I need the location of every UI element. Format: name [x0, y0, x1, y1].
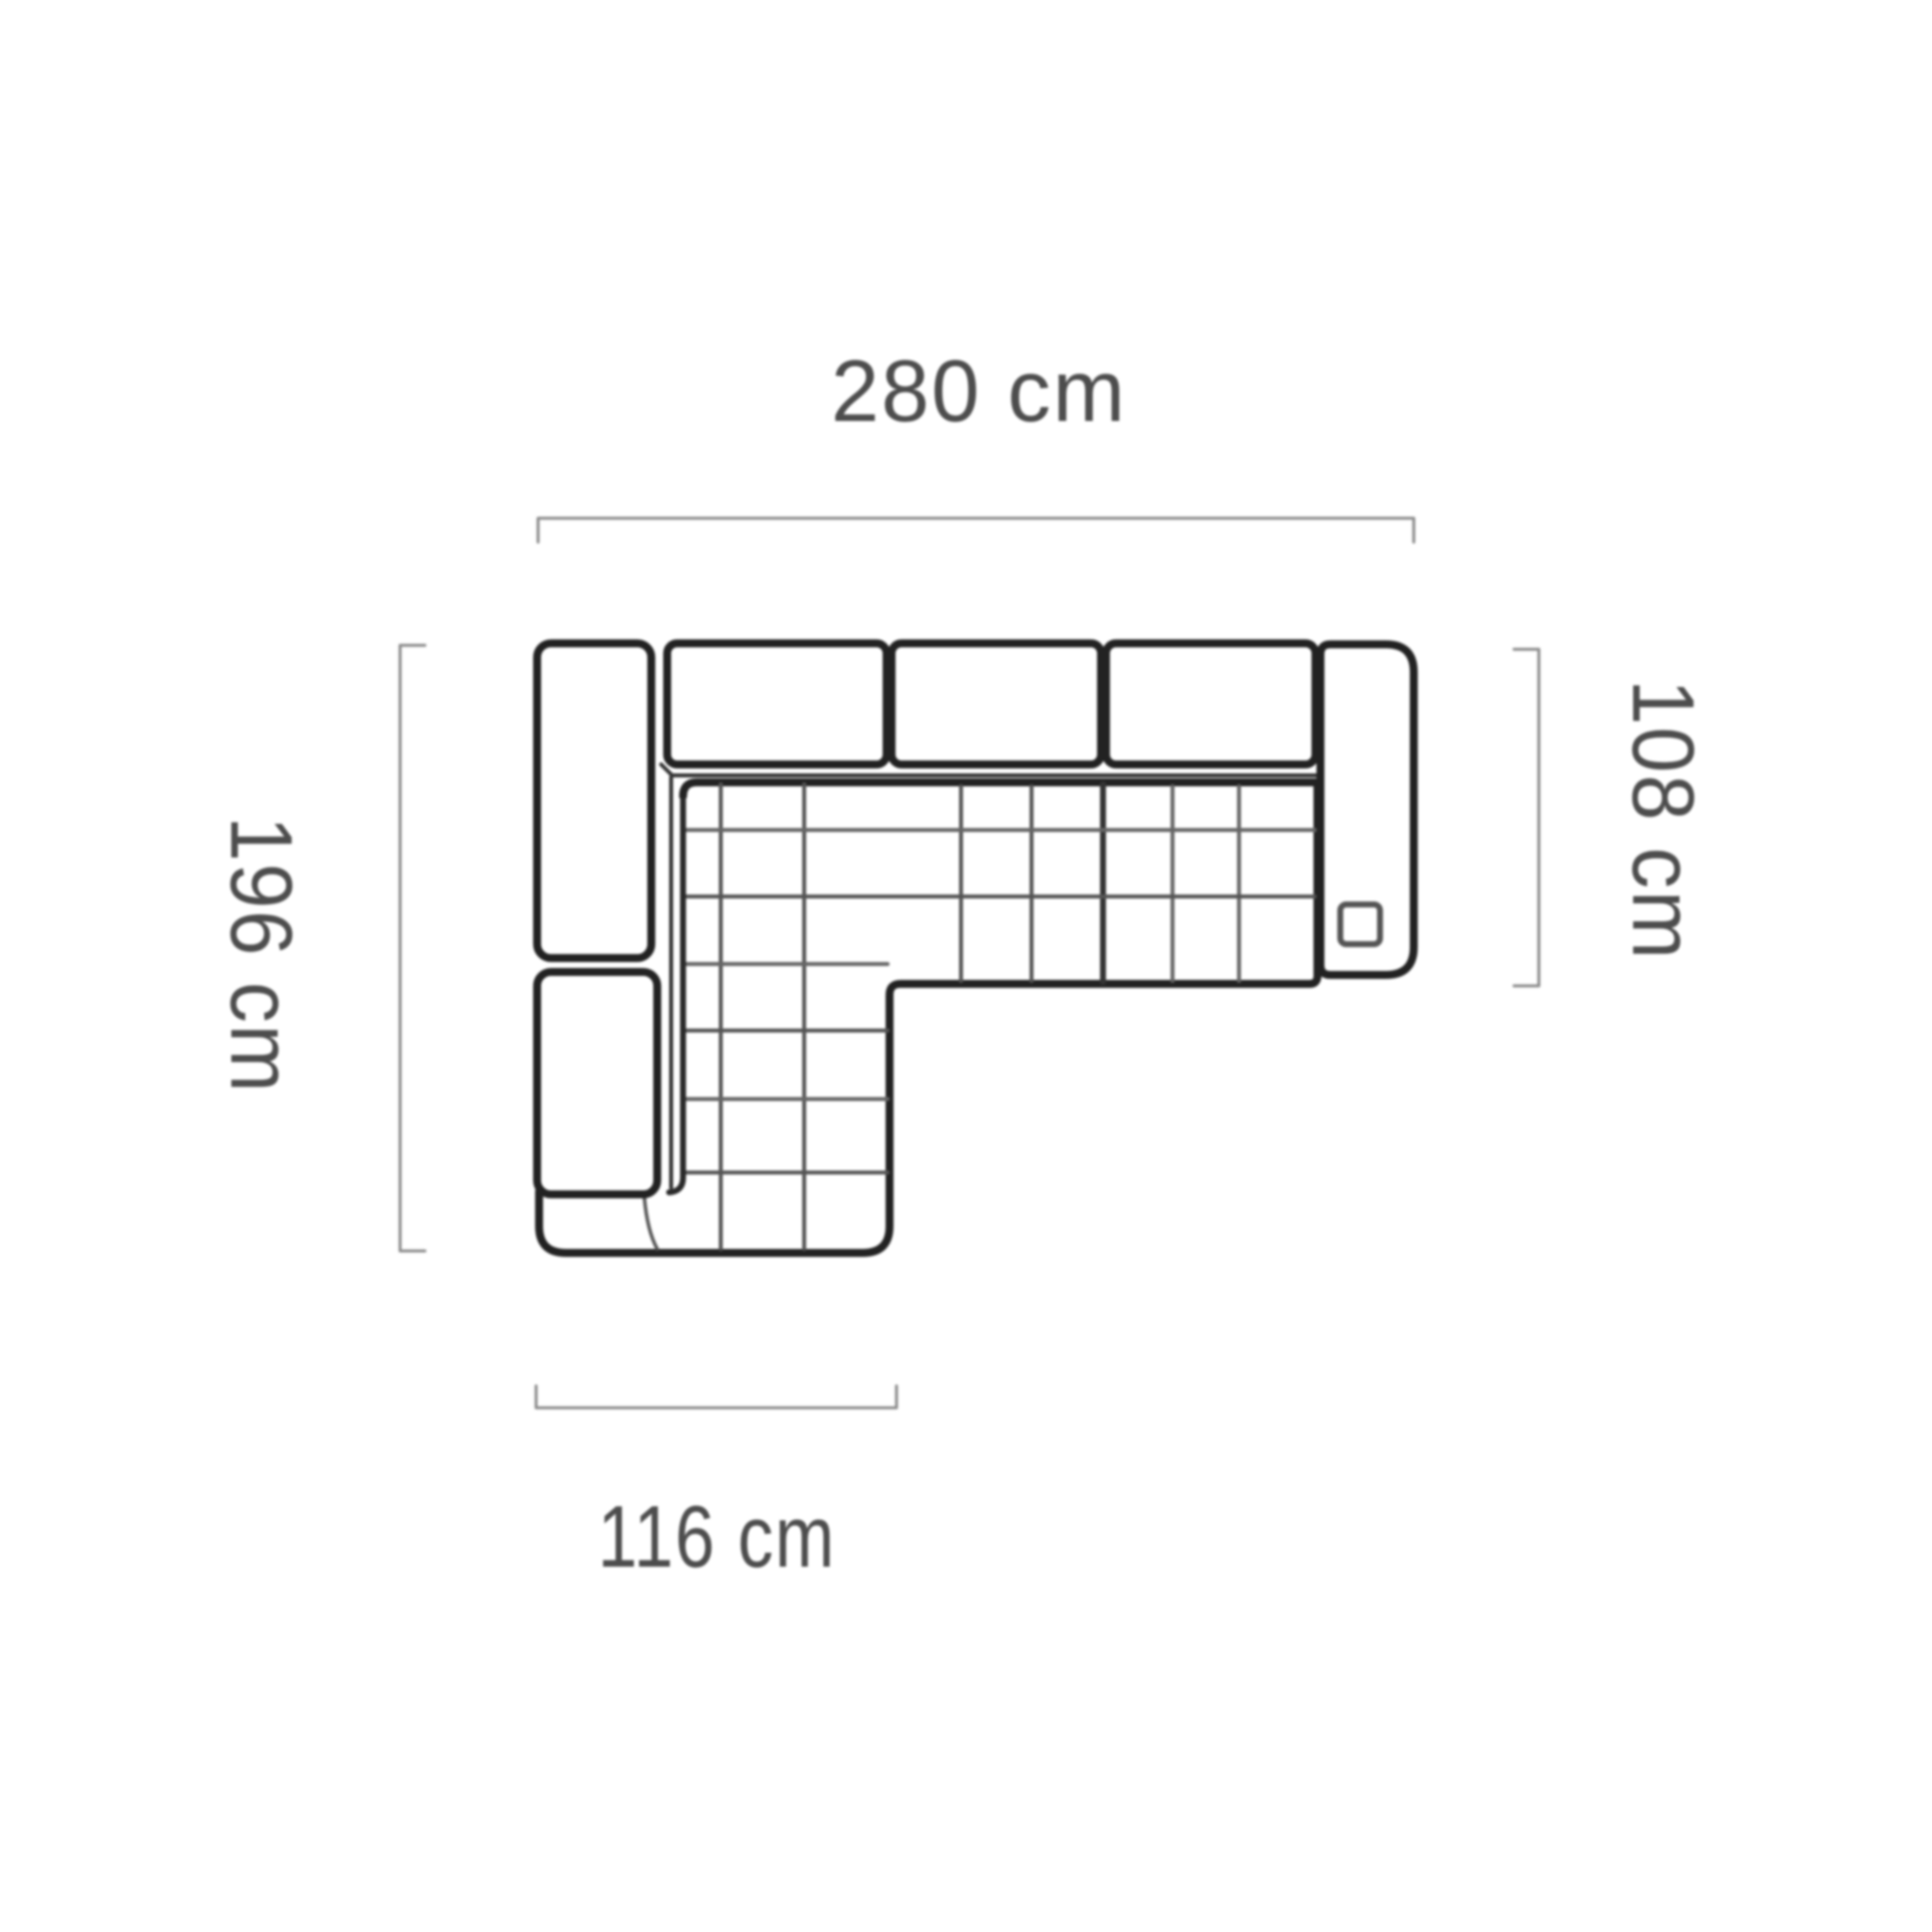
- svg-text:116 cm: 116 cm: [598, 1487, 836, 1586]
- svg-text:196 cm: 196 cm: [212, 816, 311, 1094]
- svg-text:280 cm: 280 cm: [831, 342, 1127, 440]
- svg-text:108 cm: 108 cm: [1614, 679, 1713, 961]
